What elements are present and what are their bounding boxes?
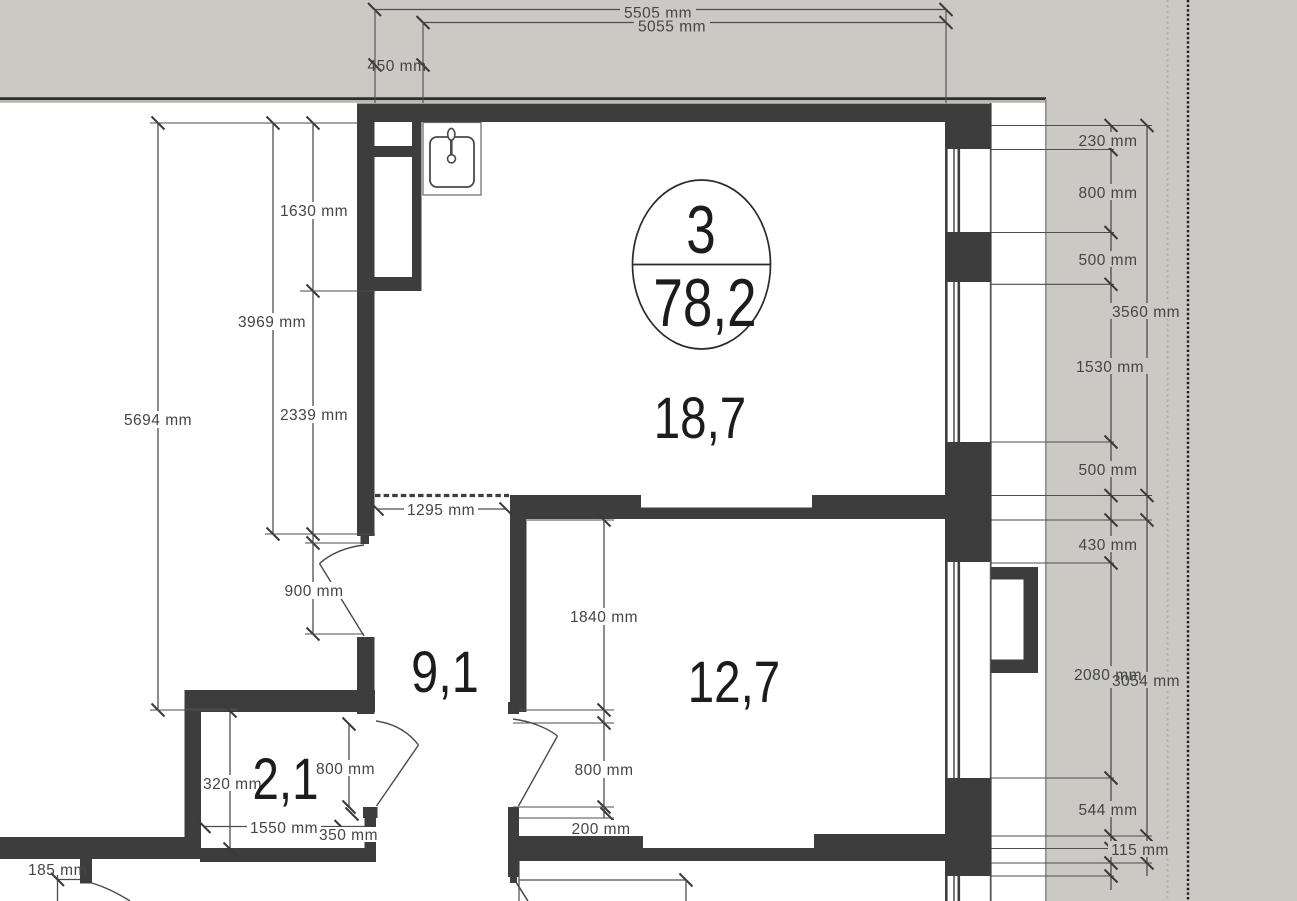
svg-text:500 mm: 500 mm <box>1079 462 1138 479</box>
svg-text:430 mm: 430 mm <box>1079 537 1138 554</box>
svg-text:230 mm: 230 mm <box>1079 133 1138 150</box>
svg-text:544 mm: 544 mm <box>1079 802 1138 819</box>
svg-text:2,1: 2,1 <box>252 748 318 813</box>
svg-text:78,2: 78,2 <box>653 265 756 341</box>
svg-text:3054 mm: 3054 mm <box>1112 673 1180 690</box>
svg-text:3560 mm: 3560 mm <box>1112 304 1180 321</box>
svg-text:1630 mm: 1630 mm <box>280 203 348 220</box>
svg-text:9,1: 9,1 <box>411 641 479 705</box>
svg-text:115 mm: 115 mm <box>1111 842 1169 859</box>
svg-text:5694 mm: 5694 mm <box>124 412 192 429</box>
svg-text:450 mm: 450 mm <box>368 58 427 75</box>
svg-text:1550 mm: 1550 mm <box>250 820 318 837</box>
svg-text:350 mm: 350 mm <box>319 827 378 844</box>
svg-text:200 mm: 200 mm <box>572 821 631 838</box>
svg-text:1840 mm: 1840 mm <box>570 609 638 626</box>
svg-text:185 mm: 185 mm <box>28 862 87 879</box>
svg-text:1295 mm: 1295 mm <box>407 502 475 519</box>
svg-text:3969 mm: 3969 mm <box>238 314 306 331</box>
svg-text:1530 mm: 1530 mm <box>1076 359 1144 376</box>
svg-text:2339 mm: 2339 mm <box>280 407 348 424</box>
svg-text:900 mm: 900 mm <box>285 583 344 600</box>
svg-text:800 mm: 800 mm <box>575 762 634 779</box>
svg-text:500 mm: 500 mm <box>1079 252 1138 269</box>
svg-text:18,7: 18,7 <box>654 387 747 452</box>
svg-text:5055 mm: 5055 mm <box>638 19 706 36</box>
svg-text:800 mm: 800 mm <box>1079 185 1138 202</box>
svg-text:3: 3 <box>686 192 716 268</box>
svg-text:800 mm: 800 mm <box>316 761 375 778</box>
svg-text:12,7: 12,7 <box>688 651 781 716</box>
